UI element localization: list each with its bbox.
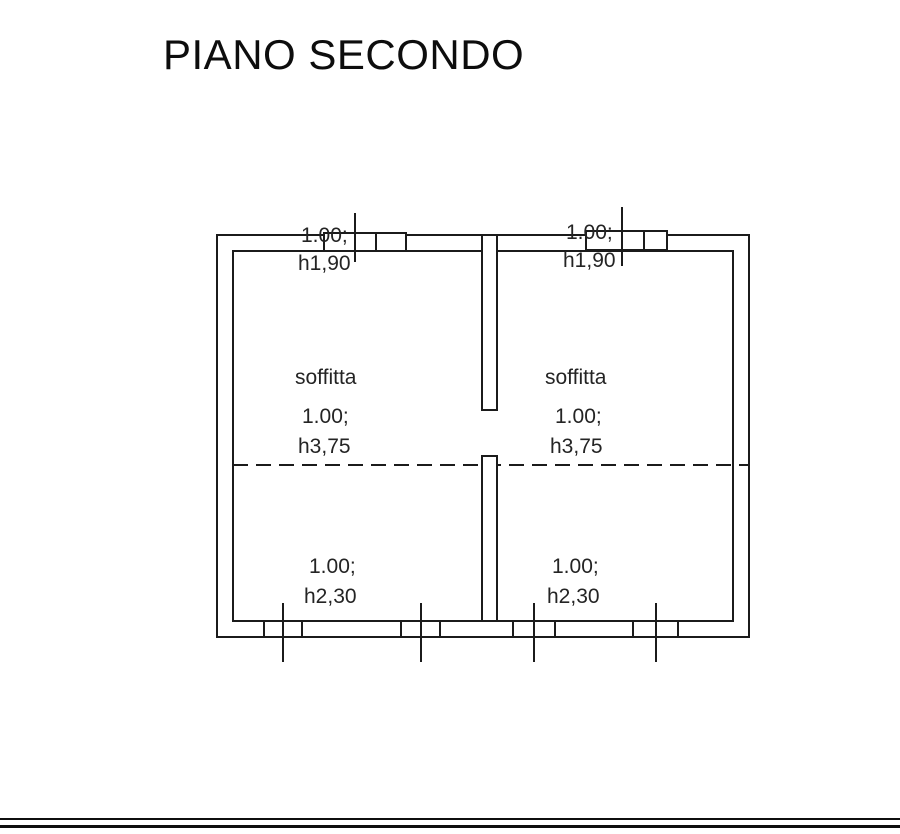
room-name-label: soffitta (295, 366, 356, 389)
top-window-right-tick (621, 207, 623, 266)
bottom-window-divider (632, 622, 634, 638)
bottom-window-divider (512, 622, 514, 638)
top-window-height-label: h1,90 (298, 252, 351, 275)
bottom-window-divider (439, 622, 441, 638)
footer-rule-bottom (0, 825, 900, 828)
room-height-label: h3,75 (550, 435, 603, 458)
partition-wall-upper (481, 234, 498, 411)
bottom-window-tick (282, 603, 284, 662)
top-window-right-divider (643, 230, 645, 251)
bottom-window-tick (655, 603, 657, 662)
top-window-left-divider (375, 232, 377, 252)
top-window-width-label: 1.00; (566, 221, 613, 244)
bottom-window-height-label: h2,30 (547, 585, 600, 608)
room-width-label: 1.00; (555, 405, 602, 428)
top-window-width-label: 1.00; (301, 224, 348, 247)
bottom-window-divider (301, 622, 303, 638)
top-window-left-tick (354, 213, 356, 262)
floor-plan-page: PIANO SECONDO 1.00; (0, 0, 900, 834)
floor-plan: 1.00; h1,90 soffitta 1.00; h3,75 1.00; h… (0, 0, 900, 834)
top-window-height-label: h1,90 (563, 249, 616, 272)
room-height-label: h3,75 (298, 435, 351, 458)
bottom-window-tick (420, 603, 422, 662)
bottom-window-width-label: 1.00; (309, 555, 356, 578)
room-width-label: 1.00; (302, 405, 349, 428)
bottom-window-tick (533, 603, 535, 662)
partition-wall-lower (481, 455, 498, 622)
bottom-window-height-label: h2,30 (304, 585, 357, 608)
bottom-window-divider (400, 622, 402, 638)
bottom-window-width-label: 1.00; (552, 555, 599, 578)
room-name-label: soffitta (545, 366, 606, 389)
bottom-window-divider (677, 622, 679, 638)
bottom-window-divider (263, 622, 265, 638)
footer-rule-top (0, 818, 900, 820)
bottom-window-divider (554, 622, 556, 638)
